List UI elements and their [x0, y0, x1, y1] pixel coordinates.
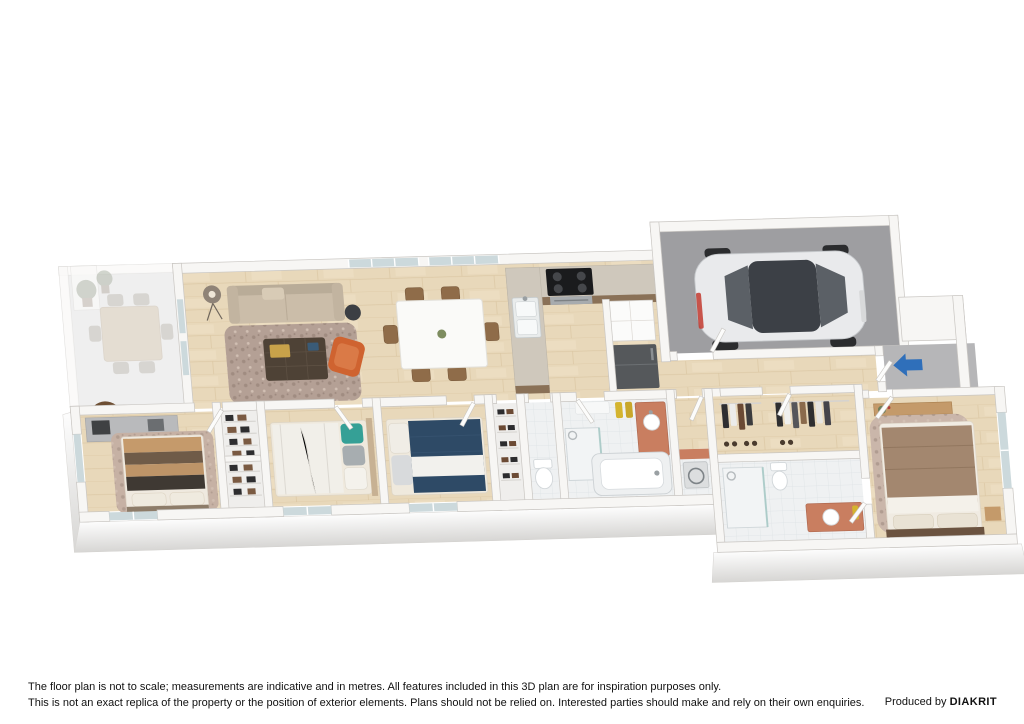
nightstand — [984, 506, 1001, 520]
bathtub — [591, 452, 672, 496]
bedroom-2 — [270, 418, 378, 499]
credit-prefix: Produced by — [885, 696, 947, 708]
ensuite-shower — [723, 467, 768, 528]
desk-printer — [91, 420, 110, 434]
bed-navy — [386, 417, 488, 496]
coffee-table — [263, 337, 328, 381]
cooktop-and-oven — [546, 268, 595, 305]
floorplan-page: The floor plan is not to scale; measurem… — [0, 0, 1024, 724]
alfresco-deck — [58, 263, 192, 414]
towel-yellow-2 — [625, 402, 633, 418]
robe-divider — [225, 455, 261, 462]
deck-fade-veil — [58, 263, 192, 414]
washing-machine — [683, 462, 709, 489]
diakrit-brand: DIAKRIT — [950, 696, 997, 708]
garage — [650, 215, 910, 362]
plan-root — [48, 212, 1024, 600]
right-wing — [704, 380, 1018, 552]
disclaimer-line-1: The floor plan is not to scale; measurem… — [28, 680, 721, 695]
master-bed — [877, 421, 985, 538]
rear-hall-floor — [675, 398, 709, 450]
bed-brown-stripe — [121, 435, 209, 513]
sofa — [226, 283, 345, 324]
kitchen-sink — [512, 296, 541, 338]
towel-yellow — [615, 402, 623, 418]
produced-by-credit: Produced by DIAKRIT — [885, 696, 997, 708]
disclaimer-line-2: This is not an exact replica of the prop… — [28, 696, 864, 711]
desk-laptop — [147, 419, 164, 431]
south-wing — [70, 384, 730, 522]
bed-white-teal — [270, 418, 378, 499]
car-roof — [747, 260, 821, 334]
floorplan-3d-render — [0, 0, 1024, 724]
laundry-bench — [679, 449, 710, 460]
toilet-tank — [533, 459, 552, 468]
bedroom-3 — [386, 417, 488, 496]
